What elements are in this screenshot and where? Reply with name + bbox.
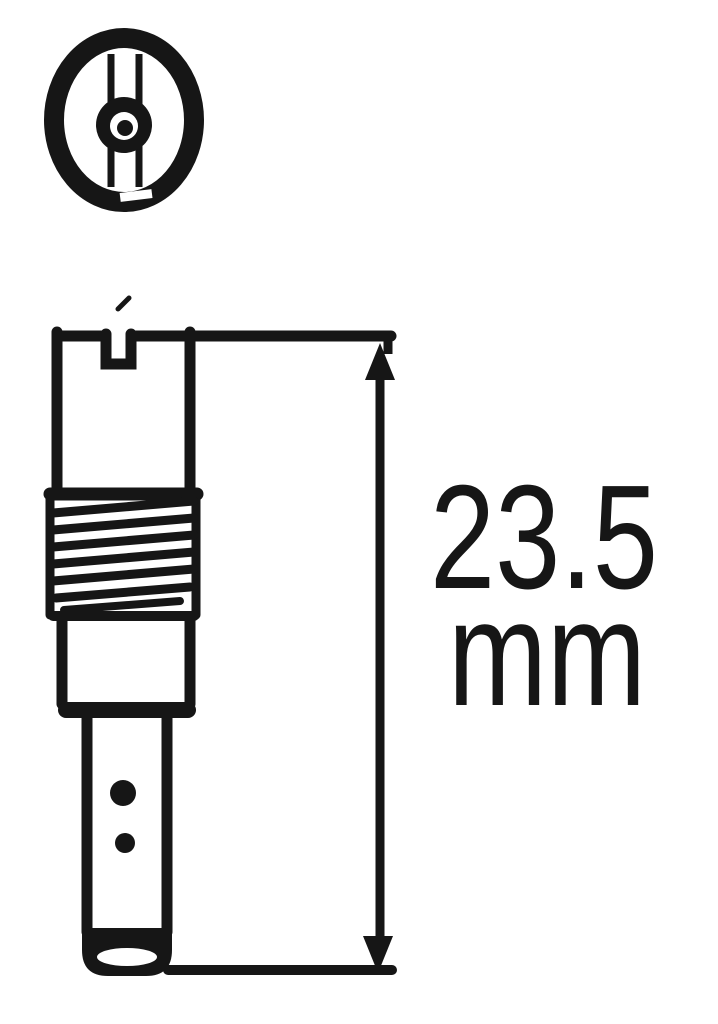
- jet-side-view: [50, 298, 391, 976]
- thread-line: [64, 601, 180, 610]
- thread-line: [53, 552, 194, 564]
- technical-drawing-page: 23.5 mm: [0, 0, 718, 1024]
- head-slot-notch: [106, 334, 131, 364]
- thread-line: [53, 501, 194, 513]
- tip-base-opening: [97, 948, 157, 966]
- thread-line: [53, 518, 194, 530]
- thread-section: [50, 496, 196, 616]
- end-view-orifice: [117, 120, 133, 136]
- thread-line: [53, 569, 194, 581]
- jet-technical-drawing: 23.5 mm: [0, 0, 718, 1024]
- thread-line: [56, 587, 190, 598]
- tip-bleed-hole-upper: [110, 780, 136, 806]
- dimension-unit-label: mm: [448, 569, 646, 737]
- dimension-annotation: 23.5 mm: [168, 336, 658, 973]
- scan-tick-mark: [118, 298, 129, 309]
- tip-bleed-hole-lower: [115, 833, 135, 853]
- jet-end-view: [54, 38, 194, 202]
- thread-line: [53, 535, 194, 547]
